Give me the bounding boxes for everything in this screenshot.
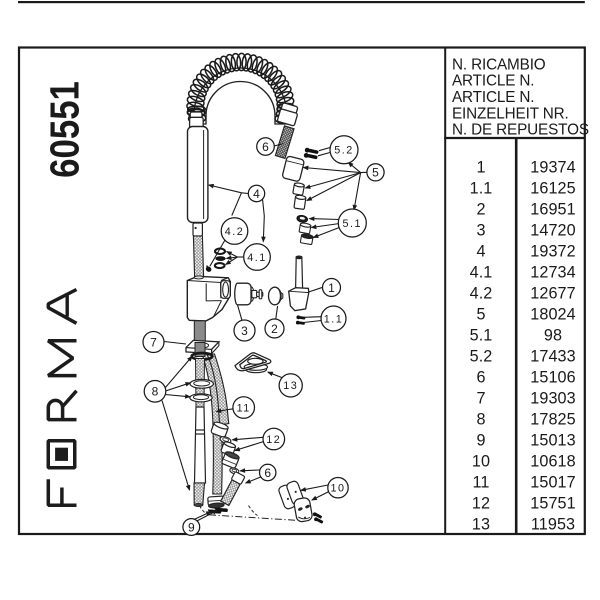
- svg-text:5.2: 5.2: [334, 145, 354, 157]
- svg-text:8: 8: [476, 411, 485, 429]
- svg-text:EINZELHEIT NR.: EINZELHEIT NR.: [452, 105, 569, 122]
- svg-text:N. RICAMBIO: N. RICAMBIO: [452, 56, 546, 73]
- svg-text:12734: 12734: [530, 264, 576, 282]
- svg-text:60551: 60551: [43, 81, 88, 178]
- svg-text:10: 10: [472, 453, 490, 471]
- svg-text:16951: 16951: [530, 201, 576, 219]
- svg-text:7: 7: [476, 390, 485, 408]
- svg-text:5: 5: [372, 166, 379, 180]
- svg-text:1.1: 1.1: [324, 313, 344, 325]
- svg-text:2: 2: [476, 201, 485, 219]
- svg-text:6: 6: [262, 140, 269, 154]
- svg-text:10618: 10618: [530, 453, 576, 471]
- svg-text:4.1: 4.1: [470, 264, 493, 282]
- svg-text:11: 11: [472, 474, 489, 492]
- svg-text:4.1: 4.1: [247, 252, 267, 264]
- svg-text:14720: 14720: [530, 222, 576, 240]
- svg-text:10: 10: [330, 483, 345, 495]
- svg-text:3: 3: [241, 324, 248, 338]
- svg-text:4: 4: [253, 187, 260, 201]
- svg-text:7: 7: [150, 335, 157, 349]
- svg-text:11953: 11953: [531, 516, 575, 534]
- svg-text:ARTICLE N.: ARTICLE N.: [452, 89, 534, 106]
- svg-text:6: 6: [476, 369, 485, 387]
- svg-text:5.1: 5.1: [343, 218, 363, 230]
- svg-text:9: 9: [188, 520, 195, 534]
- svg-text:ARTICLE N.: ARTICLE N.: [452, 73, 534, 90]
- svg-text:15751: 15751: [530, 495, 576, 513]
- svg-text:6: 6: [264, 466, 271, 480]
- svg-text:8: 8: [152, 385, 159, 399]
- svg-text:17433: 17433: [530, 348, 576, 366]
- svg-text:4: 4: [476, 243, 485, 261]
- svg-text:12: 12: [472, 495, 490, 513]
- svg-text:4.2: 4.2: [470, 285, 493, 303]
- svg-text:16125: 16125: [530, 180, 576, 198]
- svg-text:13: 13: [283, 380, 298, 392]
- svg-text:12: 12: [266, 434, 281, 446]
- svg-text:13: 13: [472, 516, 490, 534]
- svg-text:3: 3: [476, 222, 485, 240]
- svg-text:15017: 15017: [530, 474, 576, 492]
- svg-text:4.2: 4.2: [225, 226, 245, 238]
- svg-text:19372: 19372: [530, 243, 576, 261]
- svg-text:5: 5: [476, 306, 485, 324]
- svg-text:5.2: 5.2: [470, 348, 493, 366]
- svg-text:5.1: 5.1: [470, 327, 493, 345]
- svg-text:12677: 12677: [530, 285, 576, 303]
- svg-text:19303: 19303: [530, 390, 576, 408]
- svg-text:N. DE REPUESTOS: N. DE REPUESTOS: [452, 122, 589, 139]
- svg-text:2: 2: [271, 322, 278, 336]
- svg-text:19374: 19374: [530, 159, 576, 177]
- svg-text:15013: 15013: [530, 432, 576, 450]
- svg-text:98: 98: [544, 327, 562, 345]
- svg-text:1: 1: [476, 159, 485, 177]
- svg-text:9: 9: [476, 432, 485, 450]
- svg-text:11: 11: [237, 402, 251, 414]
- svg-text:1.1: 1.1: [470, 180, 493, 198]
- svg-text:15106: 15106: [530, 369, 576, 387]
- svg-text:17825: 17825: [530, 411, 576, 429]
- svg-text:18024: 18024: [530, 306, 576, 324]
- svg-text:1: 1: [328, 281, 335, 295]
